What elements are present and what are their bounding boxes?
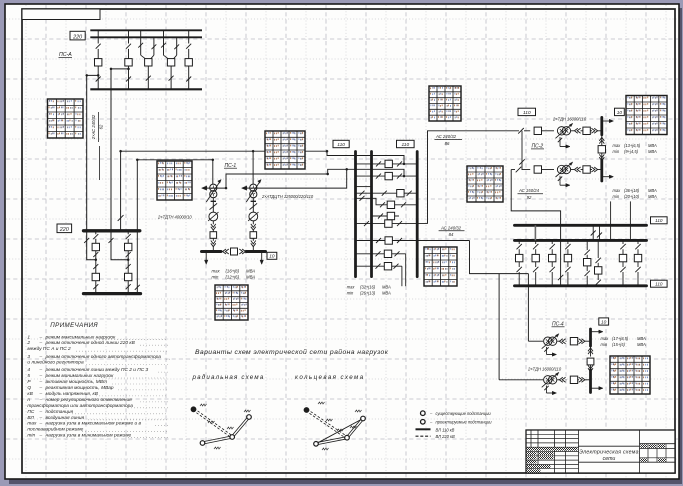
svg-text:3: 3	[27, 354, 30, 360]
svg-text:10: 10	[617, 110, 623, 116]
svg-text:номер регулировочного ответвле: номер регулировочного ответвления	[46, 398, 133, 403]
svg-text:ПРИМЕЧАНИЯ: ПРИМЕЧАНИЯ	[50, 322, 98, 329]
svg-text:радиальная схема: радиальная схема	[192, 374, 265, 381]
svg-text:–: –	[39, 380, 43, 385]
svg-text:МВА: МВА	[648, 188, 657, 193]
svg-text:МВА: МВА	[637, 336, 646, 341]
svg-text:min: min	[27, 433, 35, 439]
svg-text:сети: сети	[603, 456, 616, 462]
svg-text:(17+j8,5): (17+j8,5)	[612, 336, 629, 341]
svg-text:МВА: МВА	[648, 143, 657, 148]
svg-text:АС 150/24: АС 150/24	[518, 188, 540, 193]
svg-text:110: 110	[655, 282, 663, 287]
svg-text:реактивная мощность, МВар: реактивная мощность, МВар	[45, 385, 114, 391]
svg-text:режим минимальных нагрузок: режим минимальных нагрузок	[45, 374, 115, 379]
svg-text:2×АТДЦТН 125000/220/110: 2×АТДЦТН 125000/220/110	[261, 194, 314, 199]
svg-text:110: 110	[655, 218, 663, 223]
svg-text:62: 62	[99, 124, 104, 129]
svg-text:max: max	[601, 336, 610, 341]
svg-text:подстанция: подстанция	[46, 409, 74, 415]
svg-text:max: max	[347, 285, 356, 290]
svg-text:2×ТДН 16000/110: 2×ТДН 16000/110	[527, 367, 562, 372]
svg-text:(20+j10): (20+j10)	[624, 194, 640, 199]
svg-text:min: min	[613, 149, 620, 154]
svg-text:2: 2	[26, 340, 30, 346]
svg-text:(32+j16): (32+j16)	[360, 285, 376, 290]
svg-text:режим отключения одного автотр: режим отключения одного автотрансформато…	[45, 354, 162, 360]
svg-text:220: 220	[59, 227, 69, 233]
svg-text:min: min	[613, 194, 620, 199]
svg-text:10: 10	[601, 320, 607, 326]
svg-text:–: –	[39, 386, 43, 391]
svg-text:ВЛ: ВЛ	[27, 415, 34, 421]
svg-text:(16+j8): (16+j8)	[226, 268, 240, 273]
svg-text:–: –	[39, 416, 43, 421]
svg-text:МВА: МВА	[648, 149, 657, 154]
svg-text:max: max	[27, 422, 37, 427]
svg-text:max: max	[613, 143, 622, 148]
svg-text:min: min	[212, 274, 220, 279]
svg-text:110: 110	[401, 142, 409, 148]
svg-text:–: –	[39, 392, 43, 397]
svg-text:Электрическая схема: Электрическая схема	[579, 449, 639, 455]
svg-text:нагрузка узла в минимальном ре: нагрузка узла в минимальном режиме	[46, 434, 132, 439]
svg-text:110: 110	[523, 110, 531, 116]
svg-text:10: 10	[269, 254, 275, 260]
svg-text:между ПС А и ПС 2: между ПС А и ПС 2	[27, 346, 71, 352]
svg-text:4: 4	[27, 367, 30, 373]
svg-text:n: n	[27, 398, 30, 403]
svg-text:кольцевая схема: кольцевая схема	[295, 374, 365, 381]
svg-text:–: –	[39, 335, 43, 340]
svg-text:220: 220	[72, 34, 82, 40]
svg-text:Q: Q	[27, 385, 31, 391]
svg-text:110: 110	[337, 142, 345, 148]
svg-text:модуль напряжения, кВ: модуль напряжения, кВ	[46, 391, 99, 397]
svg-text:трансформатора или автотрансфо: трансформатора или автотрансформатора	[27, 403, 133, 409]
svg-text:2×ТДТН 40000/10: 2×ТДТН 40000/10	[157, 215, 192, 220]
svg-text:ВЛ 220 кВ: ВЛ 220 кВ	[436, 434, 455, 439]
svg-text:(36+j18): (36+j18)	[624, 188, 640, 193]
svg-text:max: max	[212, 268, 221, 273]
svg-text:воздушная линия: воздушная линия	[46, 415, 85, 421]
svg-text:МВА: МВА	[382, 291, 391, 296]
svg-text:и линейного регулятора: и линейного регулятора	[27, 359, 84, 366]
svg-text:5: 5	[27, 373, 30, 379]
svg-text:МВА: МВА	[648, 194, 657, 199]
svg-text:min: min	[601, 342, 608, 347]
svg-text:2×АС 240/32: 2×АС 240/32	[91, 114, 96, 140]
svg-text:МВА: МВА	[246, 274, 255, 279]
svg-text:АС 240/32: АС 240/32	[440, 225, 462, 230]
svg-text:режим отключения линии между: режим отключения линии между ПС 2 и ПС 3	[45, 367, 149, 373]
svg-text:(12+j6): (12+j6)	[226, 274, 240, 279]
svg-text:(15+j5): (15+j5)	[612, 342, 625, 347]
svg-text:–: –	[39, 434, 43, 439]
svg-text:кВ: кВ	[27, 391, 33, 397]
svg-text:84: 84	[449, 232, 454, 237]
svg-text:–: –	[39, 368, 43, 373]
svg-text:min: min	[347, 291, 354, 296]
svg-text:нагрузка узла в максимальном р: нагрузка узла в максимальном режиме и в	[46, 422, 142, 427]
svg-text:–: –	[39, 355, 43, 360]
svg-text:МВА: МВА	[637, 342, 646, 347]
svg-text:режим отключения одной линии 2: режим отключения одной линии 220 кВ	[45, 339, 136, 346]
svg-text:ВЛ 110 кВ: ВЛ 110 кВ	[436, 427, 455, 432]
svg-text:МВА: МВА	[246, 268, 255, 273]
svg-text:86: 86	[445, 141, 450, 146]
svg-text:(9+j4,5): (9+j4,5)	[624, 149, 639, 154]
svg-text:–: –	[39, 422, 43, 427]
svg-text:–: –	[39, 341, 43, 346]
svg-text:существующие подстанции: существующие подстанции	[436, 411, 492, 416]
svg-text:ПС: ПС	[27, 409, 34, 415]
svg-text:1: 1	[27, 334, 30, 340]
svg-text:послеаварийном режиме: послеаварийном режиме	[27, 426, 83, 433]
svg-text:max: max	[613, 188, 622, 193]
svg-text:(13+j6,5): (13+j6,5)	[624, 143, 641, 148]
svg-text:Варианты схем электрической се: Варианты схем электрической сети района …	[195, 348, 389, 356]
svg-text:–: –	[39, 410, 43, 415]
svg-text:92: 92	[527, 195, 532, 200]
svg-text:–: –	[39, 398, 43, 403]
svg-text:проектируемые подстанции: проектируемые подстанции	[436, 420, 493, 425]
svg-text:активная мощность, МВт: активная мощность, МВт	[46, 379, 107, 385]
svg-text:(26+j13): (26+j13)	[360, 291, 376, 296]
svg-text:2×ТДН 16000/110: 2×ТДН 16000/110	[552, 117, 587, 122]
svg-text:–: –	[39, 374, 43, 379]
svg-text:МВА: МВА	[382, 285, 391, 290]
svg-text:АС 240/32: АС 240/32	[435, 134, 457, 139]
